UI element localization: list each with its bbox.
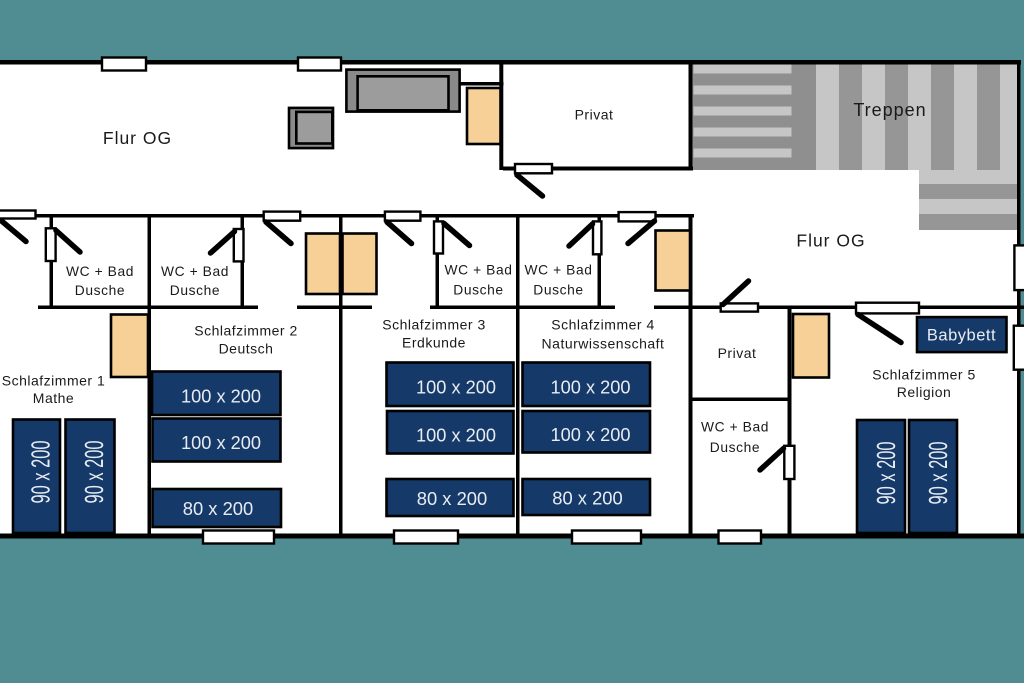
svg-text:100 x 200: 100 x 200 <box>551 425 631 445</box>
svg-text:WC + Bad: WC + Bad <box>161 264 229 279</box>
svg-text:Dusche: Dusche <box>75 283 125 298</box>
svg-text:Deutsch: Deutsch <box>219 341 274 357</box>
svg-text:Babybett: Babybett <box>927 327 996 345</box>
svg-text:100 x 200: 100 x 200 <box>181 386 261 406</box>
svg-text:80 x 200: 80 x 200 <box>183 499 254 519</box>
svg-text:WC + Bad: WC + Bad <box>701 420 769 435</box>
svg-text:100 x 200: 100 x 200 <box>416 425 496 445</box>
svg-text:Schlafzimmer 4: Schlafzimmer 4 <box>551 317 654 333</box>
svg-text:WC + Bad: WC + Bad <box>524 263 592 278</box>
svg-text:Dusche: Dusche <box>453 283 503 298</box>
svg-text:100 x 200: 100 x 200 <box>181 433 261 453</box>
svg-text:Schlafzimmer 1: Schlafzimmer 1 <box>2 373 105 389</box>
svg-text:80 x 200: 80 x 200 <box>417 489 488 509</box>
svg-text:90 x 200: 90 x 200 <box>79 441 109 504</box>
svg-text:100 x 200: 100 x 200 <box>416 377 496 397</box>
svg-text:90 x 200: 90 x 200 <box>26 441 56 504</box>
svg-text:Erdkunde: Erdkunde <box>402 335 466 351</box>
svg-text:Privat: Privat <box>575 107 614 123</box>
svg-text:Flur OG: Flur OG <box>103 128 172 148</box>
svg-text:Naturwissenschaft: Naturwissenschaft <box>542 336 665 352</box>
svg-text:Religion: Religion <box>897 384 952 400</box>
svg-text:Schlafzimmer 2: Schlafzimmer 2 <box>194 323 297 339</box>
svg-text:Privat: Privat <box>718 345 757 361</box>
svg-text:100 x 200: 100 x 200 <box>551 377 631 397</box>
svg-text:Dusche: Dusche <box>533 283 583 298</box>
svg-text:Dusche: Dusche <box>170 283 220 298</box>
svg-text:Dusche: Dusche <box>710 440 760 455</box>
svg-text:Treppen: Treppen <box>853 100 926 120</box>
svg-text:WC + Bad: WC + Bad <box>66 264 134 279</box>
svg-text:WC + Bad: WC + Bad <box>444 263 512 278</box>
svg-text:Flur OG: Flur OG <box>796 231 865 251</box>
svg-text:Mathe: Mathe <box>33 390 74 406</box>
svg-text:Schlafzimmer 3: Schlafzimmer 3 <box>382 317 485 333</box>
svg-text:Schlafzimmer 5: Schlafzimmer 5 <box>872 367 975 383</box>
svg-text:90 x 200: 90 x 200 <box>871 442 901 505</box>
svg-text:80 x 200: 80 x 200 <box>552 488 623 508</box>
svg-text:90 x 200: 90 x 200 <box>923 442 953 505</box>
